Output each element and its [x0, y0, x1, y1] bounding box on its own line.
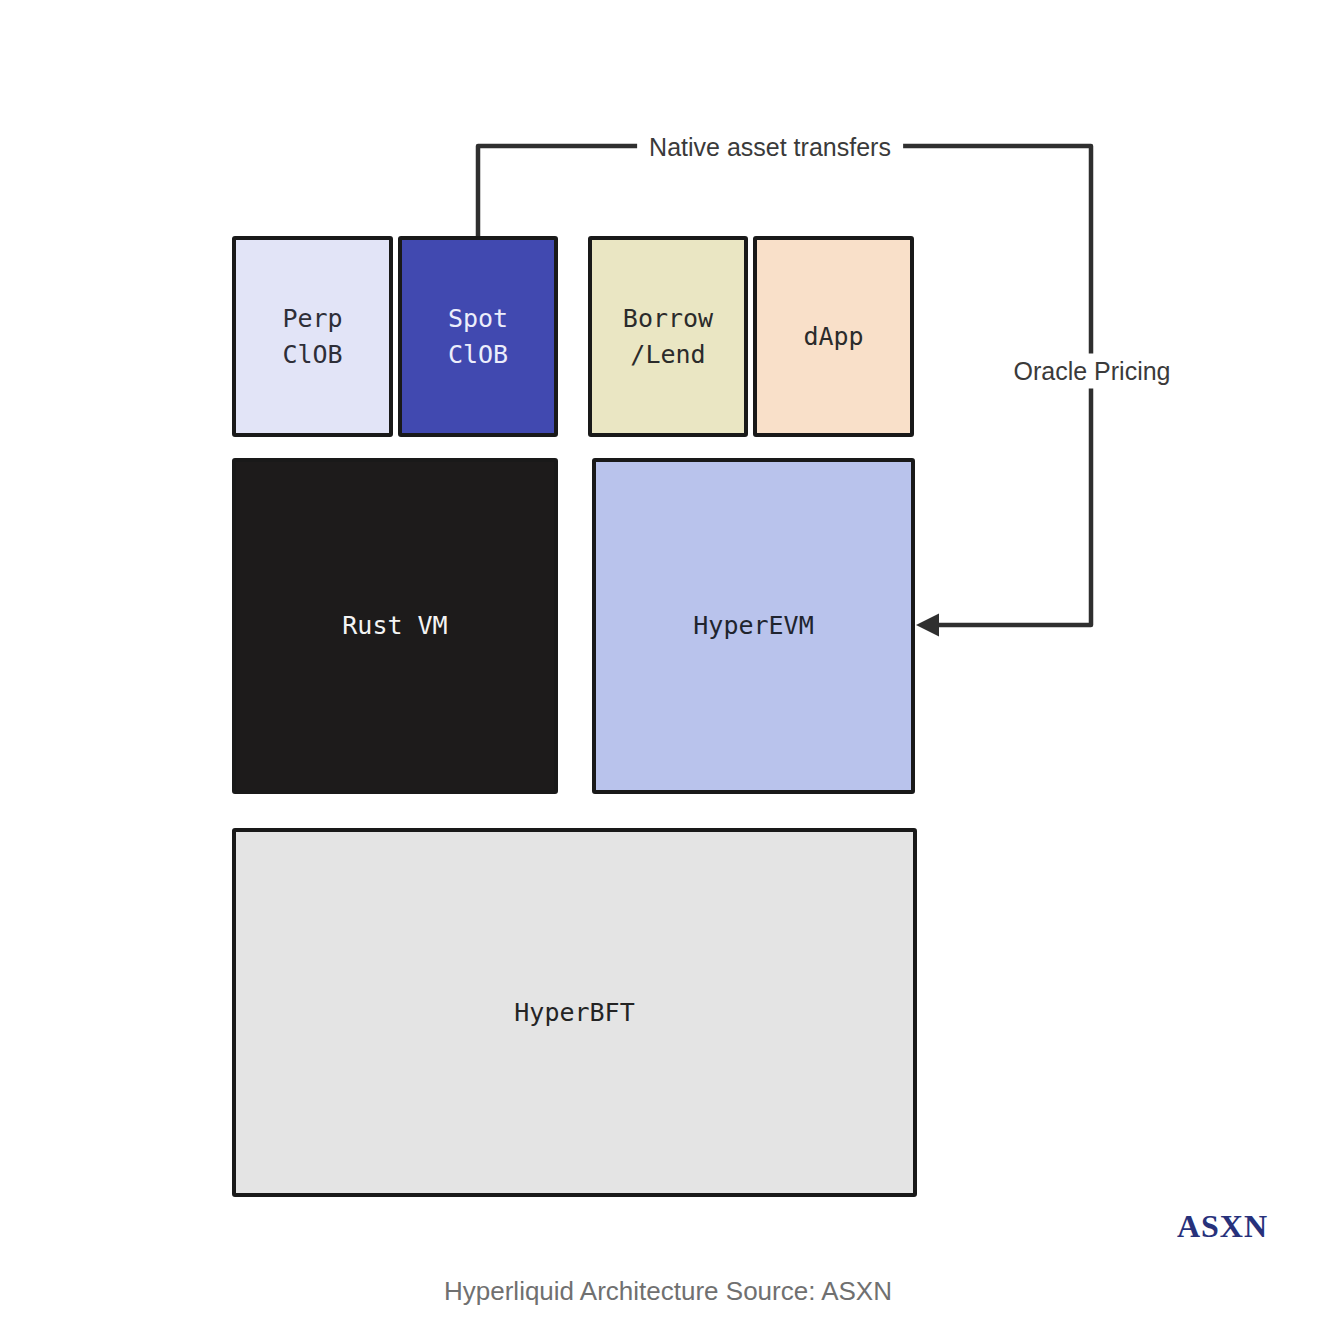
- dapp-label: dApp: [803, 319, 863, 355]
- dapp-box: dApp: [753, 236, 914, 437]
- spot-clob-label: Spot ClOB: [448, 301, 508, 372]
- borrow-lend-box: Borrow /Lend: [588, 236, 748, 437]
- asxn-logo: ASXN: [1177, 1208, 1268, 1245]
- diagram-canvas: Perp ClOB Spot ClOB Borrow /Lend dApp Ru…: [0, 0, 1336, 1336]
- rust-vm-box: Rust VM: [232, 458, 558, 794]
- hyperevm-box: HyperEVM: [592, 458, 915, 794]
- arrowhead-icon: [916, 614, 939, 637]
- borrow-lend-label: Borrow /Lend: [623, 301, 713, 372]
- spot-clob-box: Spot ClOB: [398, 236, 558, 437]
- oracle-pricing-label: Oracle Pricing: [1002, 354, 1183, 389]
- perp-clob-label: Perp ClOB: [282, 301, 342, 372]
- native-asset-transfers-label: Native asset transfers: [637, 130, 903, 165]
- hyperbft-label: HyperBFT: [514, 995, 634, 1031]
- diagram-caption: Hyperliquid Architecture Source: ASXN: [0, 1276, 1336, 1307]
- perp-clob-box: Perp ClOB: [232, 236, 393, 437]
- rust-vm-label: Rust VM: [342, 608, 447, 644]
- hyperbft-box: HyperBFT: [232, 828, 917, 1197]
- hyperevm-label: HyperEVM: [693, 608, 813, 644]
